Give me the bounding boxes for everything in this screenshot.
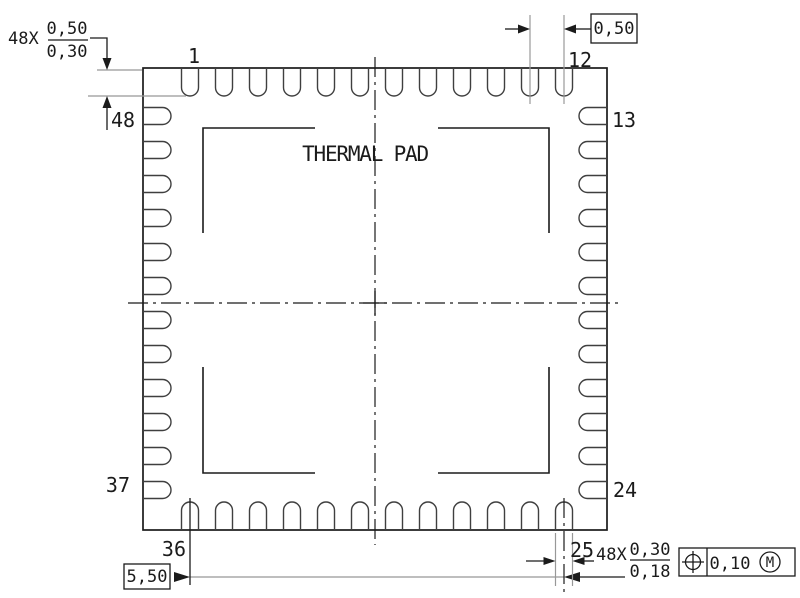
pin-label-1: 1 (188, 44, 200, 68)
pin (579, 312, 607, 329)
pin (143, 108, 171, 125)
thermal-pad-label: THERMAL PAD (302, 142, 428, 166)
position-icon (682, 551, 704, 573)
pin (579, 176, 607, 193)
pin (143, 346, 171, 363)
arrowhead (103, 96, 112, 108)
pin (454, 502, 471, 530)
leader-line (90, 38, 107, 58)
pin-width-max: 0,30 (630, 540, 671, 560)
pin-label-48: 48 (111, 108, 135, 132)
arrowhead (564, 25, 576, 34)
pin-label-13: 13 (612, 108, 636, 132)
qfn-package-drawing: 48X 0,50 0,30 0,50 1 12 13 24 25 36 37 4… (0, 0, 800, 598)
pin (454, 68, 471, 96)
thermal-pad-corner-mark (203, 128, 315, 233)
pin (143, 312, 171, 329)
arrowhead (174, 572, 190, 582)
pin (579, 482, 607, 499)
pin (386, 502, 403, 530)
pin (579, 108, 607, 125)
span-value: 5,50 (127, 567, 168, 587)
pin-length-min: 0,30 (47, 42, 88, 62)
thermal-pad-corner-mark (203, 367, 315, 473)
pin-label-36: 36 (162, 537, 186, 561)
arrowhead (544, 557, 556, 565)
pin (143, 142, 171, 159)
pin (420, 502, 437, 530)
pin (318, 502, 335, 530)
pin (386, 68, 403, 96)
pin-label-12: 12 (568, 48, 592, 72)
thermal-pad-corner-mark (438, 367, 549, 473)
pin (143, 380, 171, 397)
pin (143, 244, 171, 261)
tolerance-frame: 0,10 M (679, 548, 795, 576)
pitch-value: 0,50 (594, 19, 635, 39)
pin (143, 448, 171, 465)
pin-label-25: 25 (570, 538, 594, 562)
pin-label-37: 37 (106, 473, 130, 497)
pin (182, 68, 199, 96)
pin (143, 414, 171, 431)
modifier-letter: M (766, 555, 774, 571)
pin (216, 68, 233, 96)
mechanical-drawing-page: 48X 0,50 0,30 0,50 1 12 13 24 25 36 37 4… (0, 0, 800, 598)
pin (143, 482, 171, 499)
pin (488, 68, 505, 96)
pin (216, 502, 233, 530)
pin-length-count: 48X (8, 29, 39, 49)
thermal-pad-corner-mark (438, 128, 549, 233)
pin (250, 68, 267, 96)
pin (579, 244, 607, 261)
pin-width-min: 0,18 (630, 562, 671, 582)
pin (420, 68, 437, 96)
pin (284, 68, 301, 96)
pin (579, 448, 607, 465)
pin (143, 176, 171, 193)
pin (352, 502, 369, 530)
pin (488, 502, 505, 530)
pin (579, 346, 607, 363)
pin (522, 502, 539, 530)
pin (579, 380, 607, 397)
pin (579, 210, 607, 227)
pin-width-count: 48X (596, 545, 627, 565)
pin (579, 278, 607, 295)
pin (318, 68, 335, 96)
pin (143, 278, 171, 295)
arrowhead (518, 25, 530, 34)
pin-length-max: 0,50 (47, 19, 88, 39)
material-modifier-icon: M (760, 552, 780, 572)
tolerance-value: 0,10 (710, 554, 751, 574)
pin (143, 210, 171, 227)
arrowhead (103, 58, 112, 70)
pin (284, 502, 301, 530)
pin (579, 142, 607, 159)
pin (250, 502, 267, 530)
pin (579, 414, 607, 431)
pin-label-24: 24 (613, 478, 637, 502)
pin (352, 68, 369, 96)
